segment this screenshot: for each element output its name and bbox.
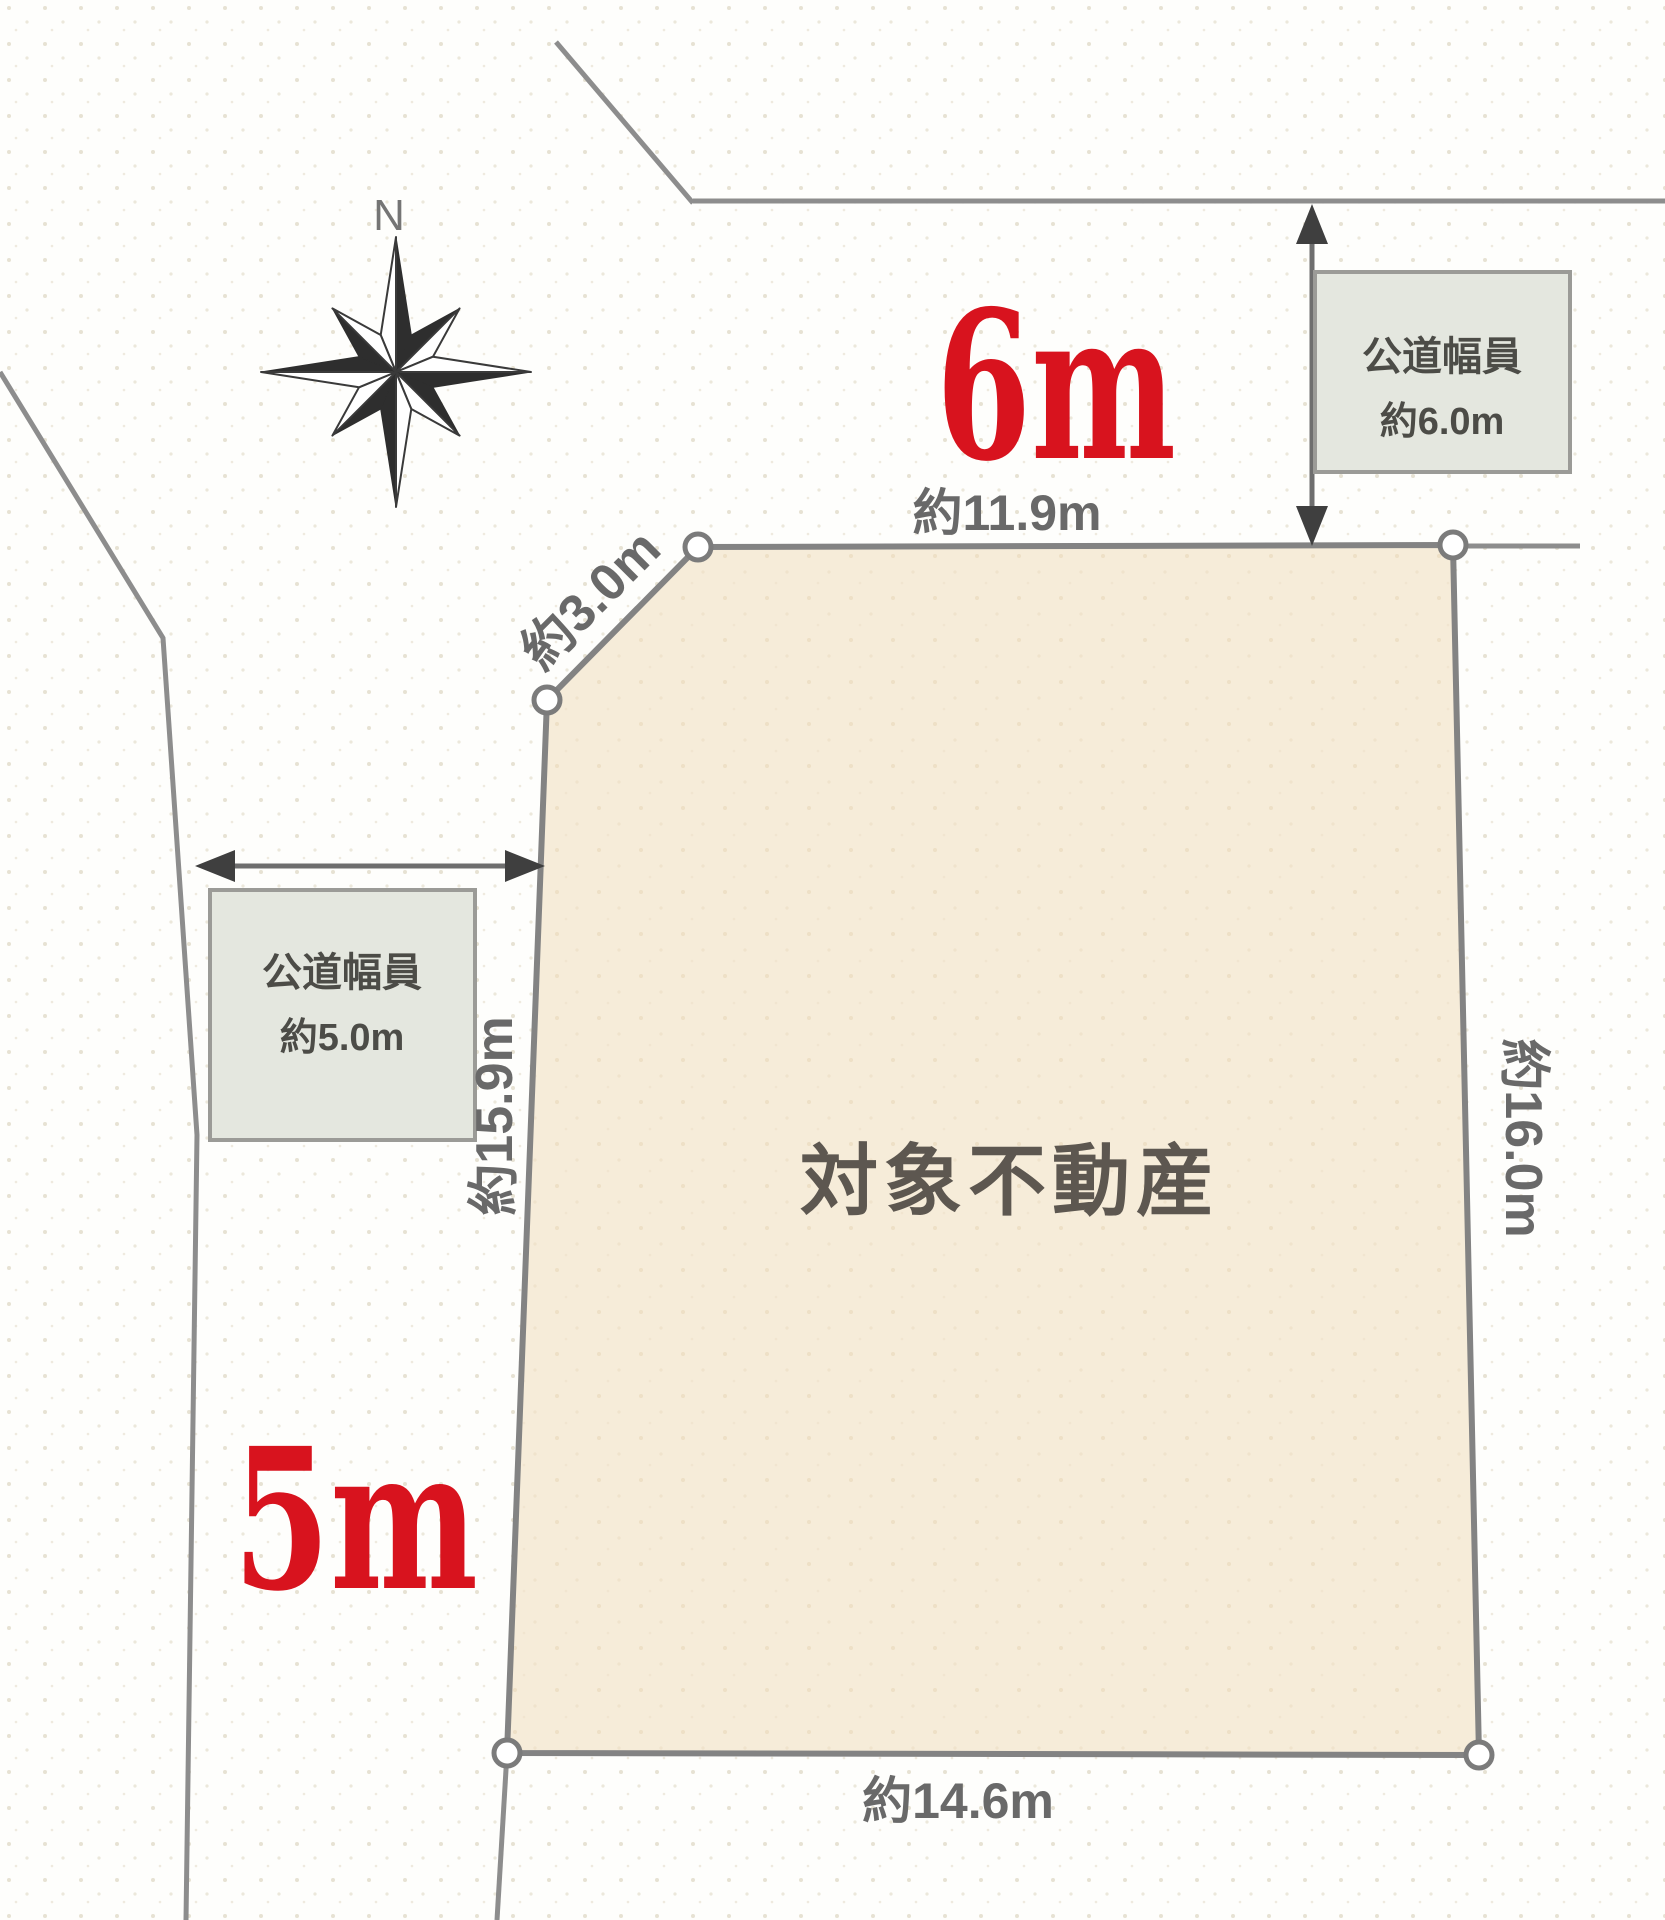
west-road-width-box: 公道幅員 約5.0m	[210, 890, 475, 1140]
west-road-width-box-value: 約5.0m	[280, 1017, 405, 1059]
dimension-south: 約14.6m	[862, 1773, 1054, 1829]
site-plan-page: 公道幅員 約6.0m 公道幅員 約5.0m N 6m 5	[0, 0, 1665, 1920]
vertex-marker-northeast	[1440, 532, 1466, 558]
north-road-width-box-title: 公道幅員	[1362, 335, 1522, 379]
parcel-label: 対象不動産	[800, 1137, 1220, 1225]
west-road-width-highlight: 5m	[233, 1405, 478, 1634]
compass-north-label: N	[373, 191, 405, 240]
west-road-width-box-frame	[210, 890, 475, 1140]
dimension-north: 約11.9m	[912, 485, 1101, 541]
north-road-width-highlight: 6m	[936, 267, 1176, 507]
vertex-marker-top-of-diagonal	[685, 534, 711, 560]
dimension-east: 約16.0m	[1494, 1038, 1552, 1237]
vertex-marker-southeast	[1466, 1742, 1492, 1768]
vertex-marker-bottom-of-diagonal	[534, 687, 560, 713]
north-road-width-box: 公道幅員 約6.0m	[1315, 272, 1570, 472]
north-road-width-box-value: 約6.0m	[1380, 401, 1505, 443]
site-plan-svg: 公道幅員 約6.0m 公道幅員 約5.0m N 6m 5	[0, 0, 1665, 1920]
dimension-west: 約15.9m	[466, 1016, 524, 1215]
vertex-marker-southwest	[494, 1740, 520, 1766]
west-road-width-box-title: 公道幅員	[262, 951, 422, 995]
